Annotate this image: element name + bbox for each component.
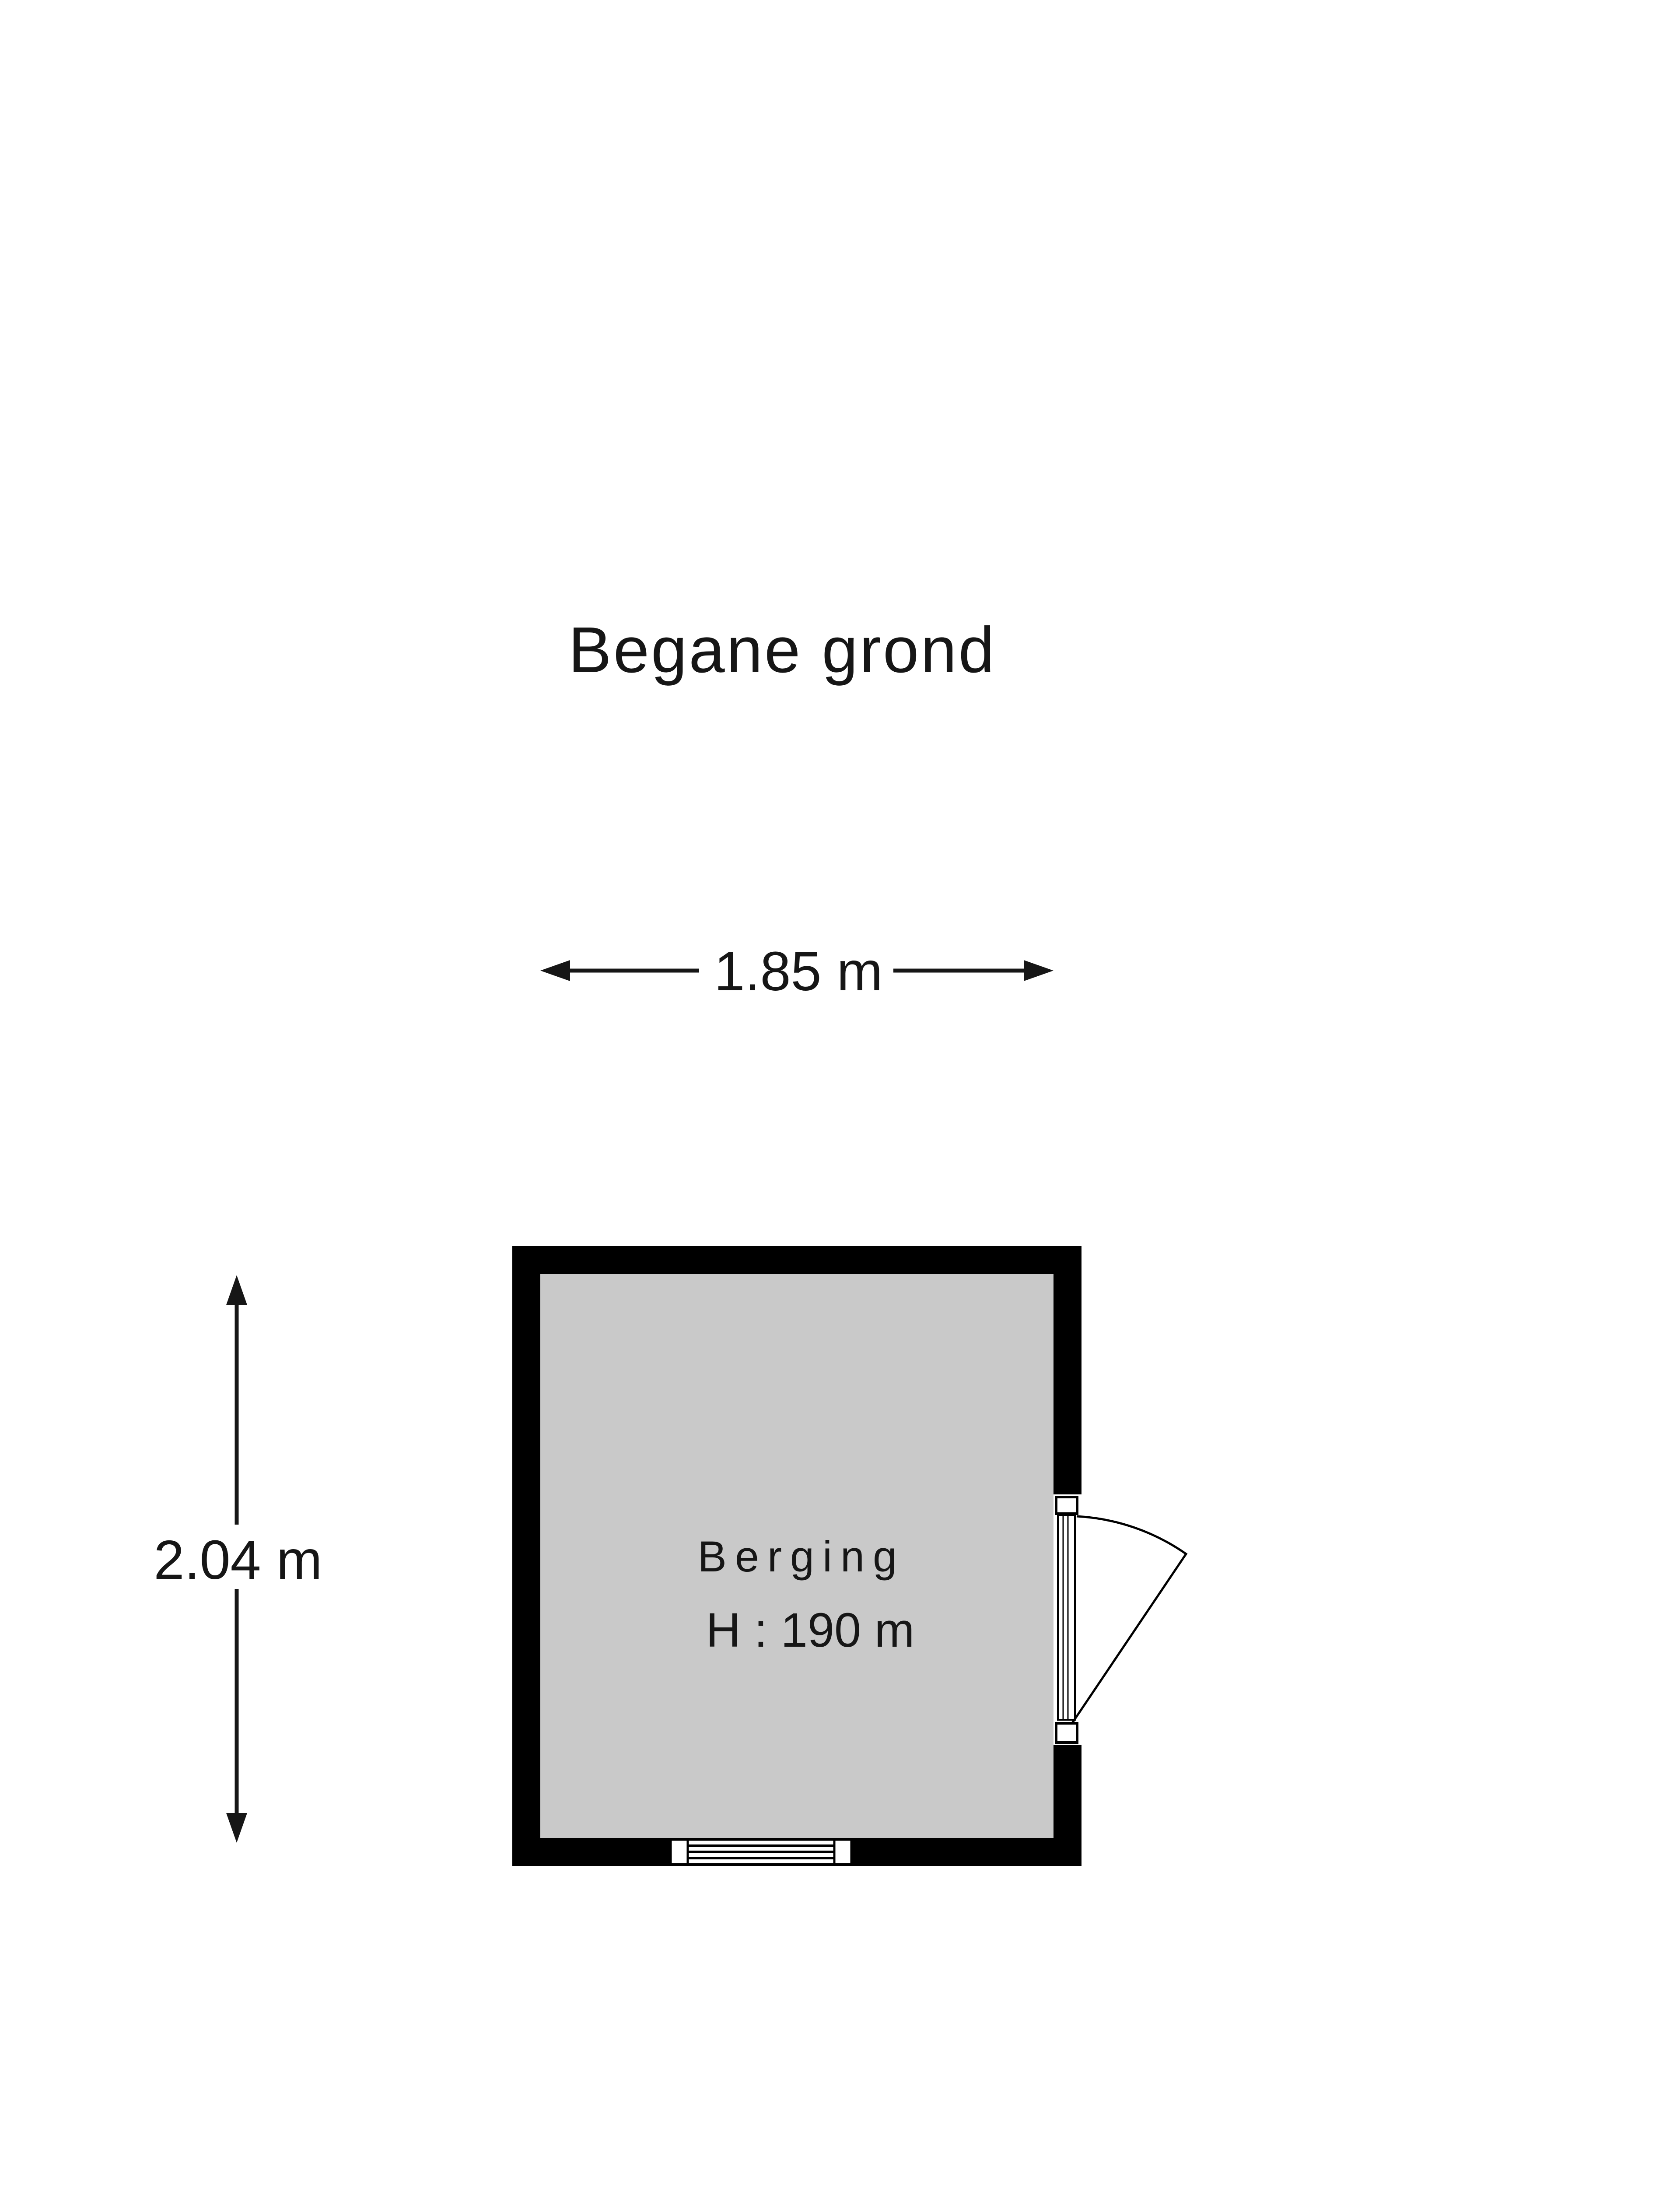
svg-text:2.04 m: 2.04 m (154, 1529, 322, 1591)
svg-text:1.85 m: 1.85 m (714, 940, 882, 1002)
svg-text:H : 190 m: H : 190 m (706, 1603, 915, 1657)
svg-text:Berging: Berging (698, 1532, 905, 1581)
svg-text:Begane grond: Begane grond (568, 614, 996, 686)
